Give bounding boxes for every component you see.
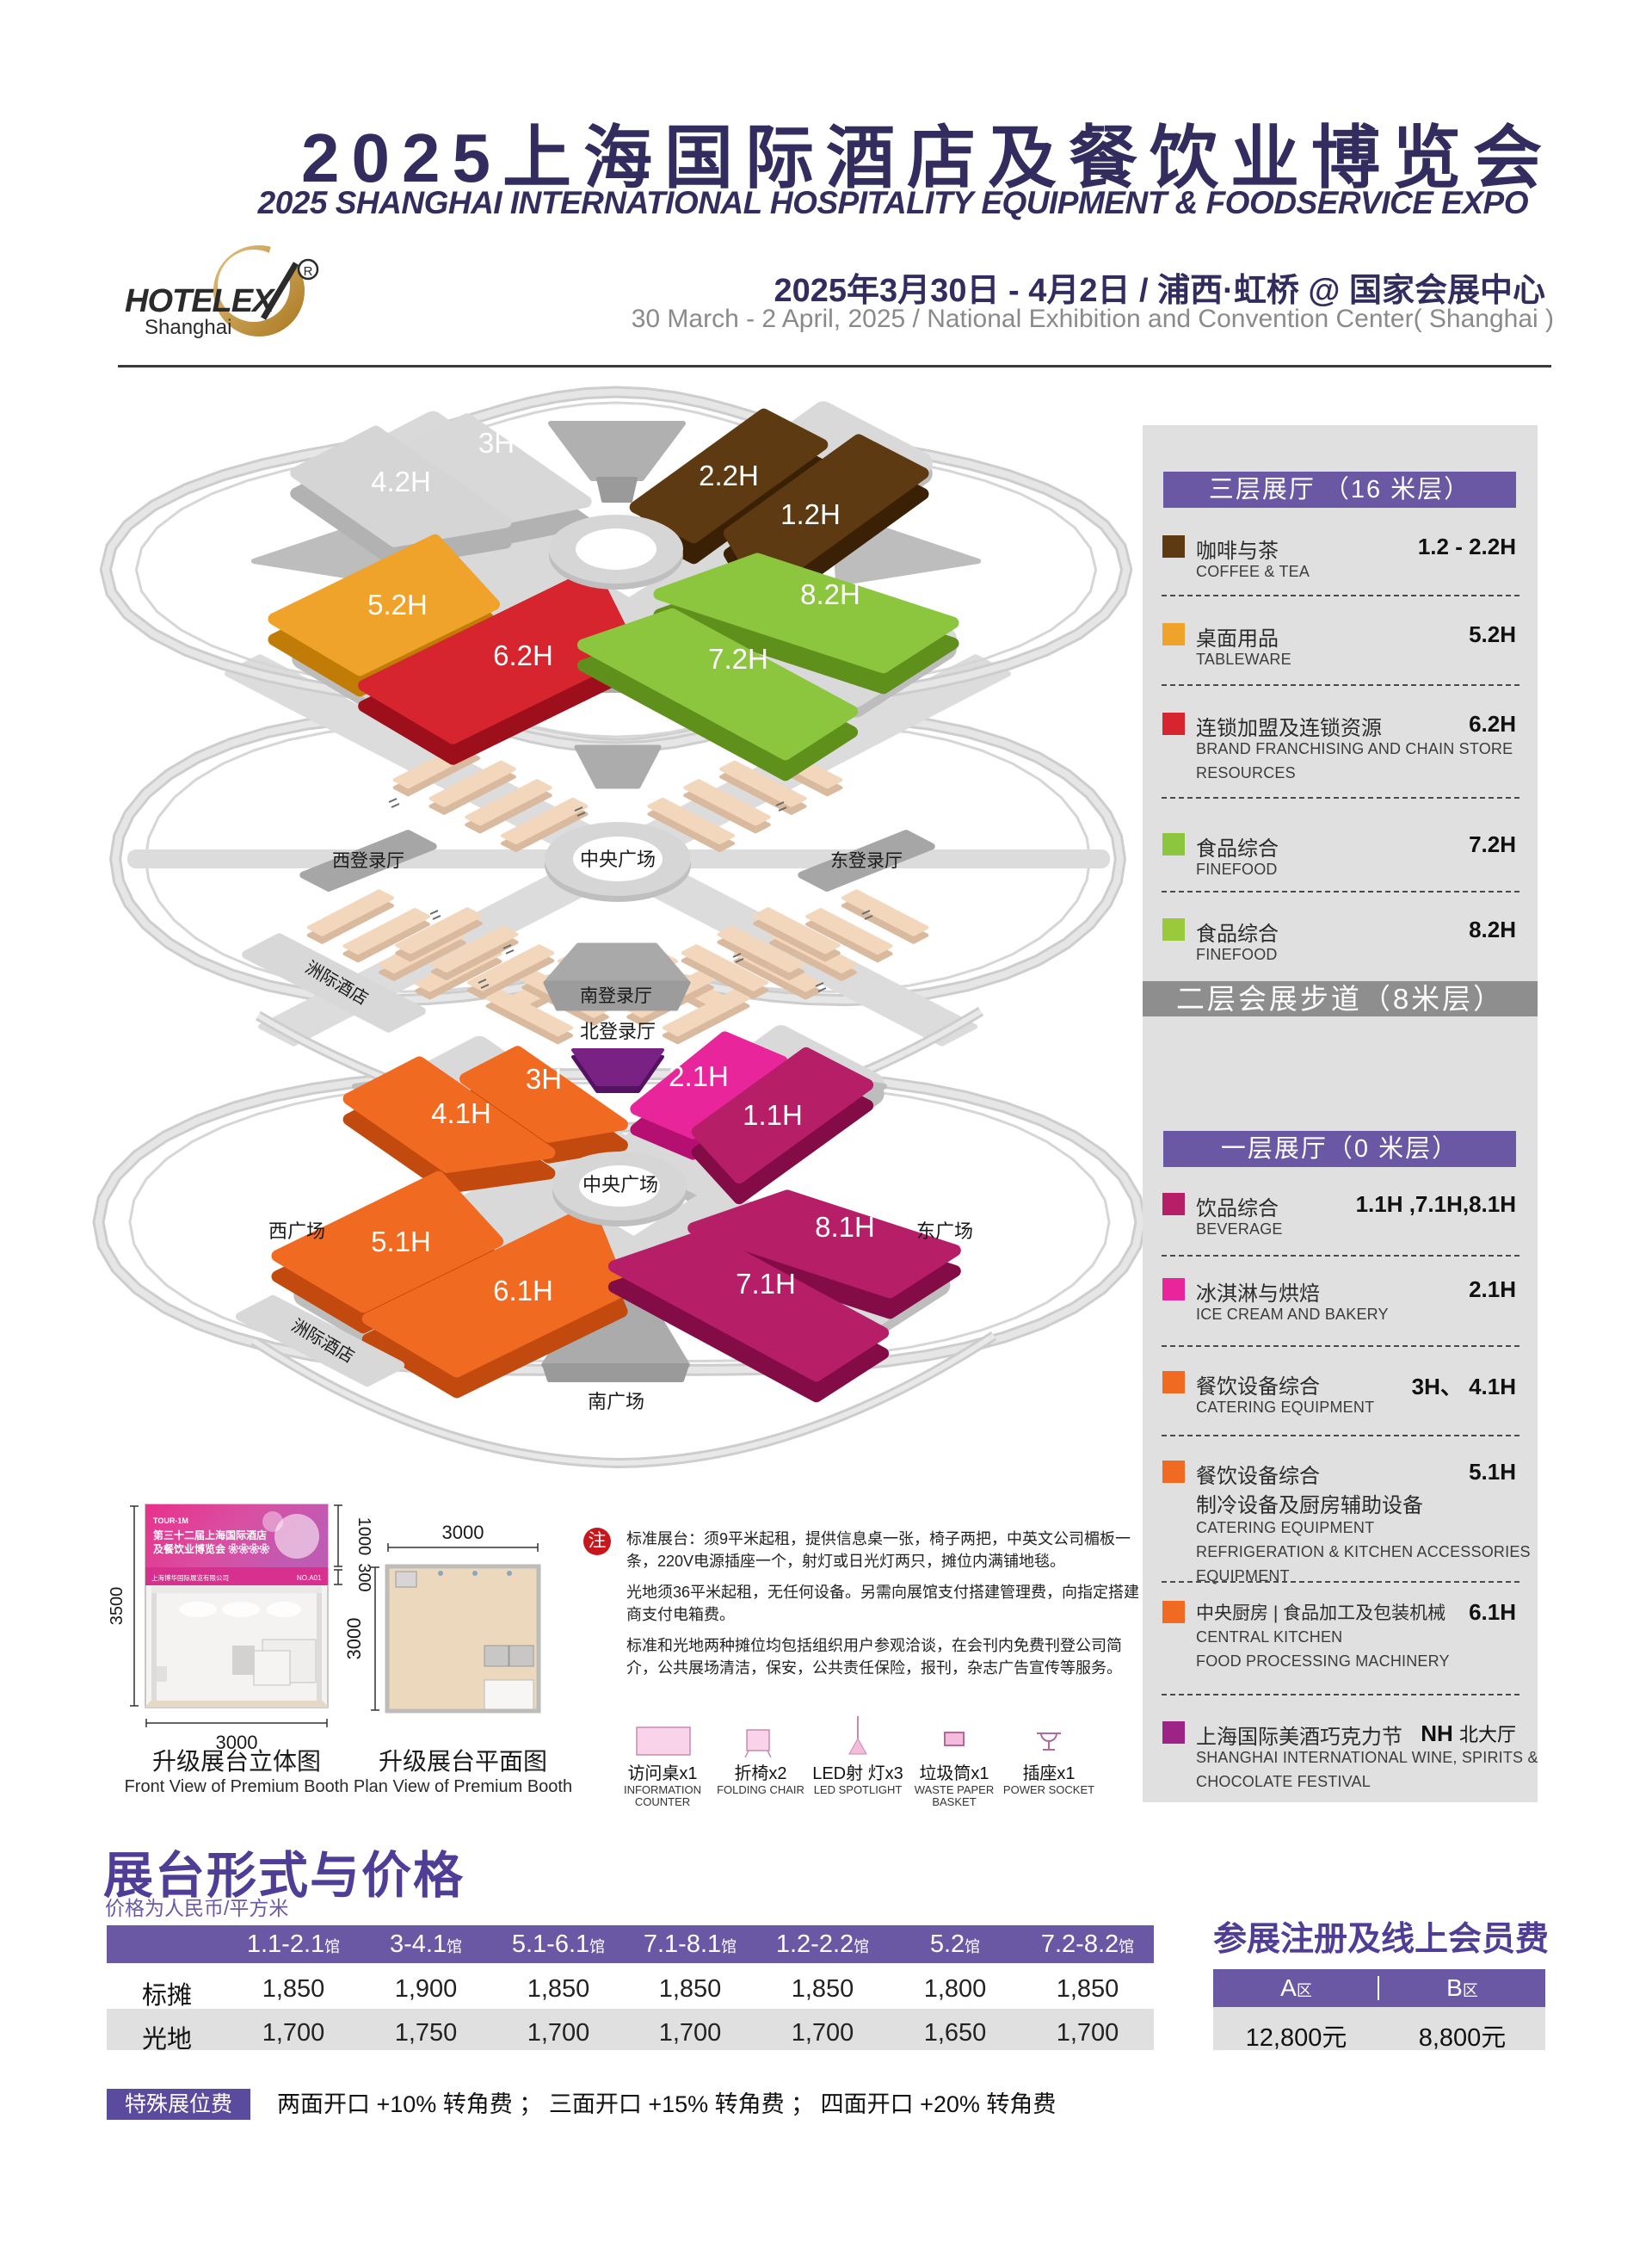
svg-text:中央广场: 中央广场 <box>583 1174 658 1195</box>
svg-text:垃圾筒x1: 垃圾筒x1 <box>919 1763 989 1783</box>
svg-text:4.1H: 4.1H <box>431 1097 491 1129</box>
svg-text:第三十二届上海国际酒店: 第三十二届上海国际酒店 <box>153 1529 267 1541</box>
svg-text:3000: 3000 <box>343 1618 365 1660</box>
svg-text:LED射 灯x3: LED射 灯x3 <box>812 1763 903 1783</box>
svg-text:6.2H: 6.2H <box>493 639 553 671</box>
svg-text:升级展台平面图: 升级展台平面图 <box>379 1748 547 1775</box>
svg-text:西广场: 西广场 <box>268 1220 325 1242</box>
svg-text:7.1H: 7.1H <box>736 1268 796 1300</box>
svg-text:5.1H: 5.1H <box>371 1226 431 1257</box>
svg-text:R: R <box>304 264 313 279</box>
svg-text:Shanghai: Shanghai <box>145 316 231 339</box>
svg-text:Plan View of Premium Booth: Plan View of Premium Booth <box>354 1777 572 1796</box>
svg-text:BASKET: BASKET <box>932 1795 976 1808</box>
svg-text:3500: 3500 <box>108 1587 126 1626</box>
svg-text:2.1H: 2.1H <box>669 1060 729 1092</box>
svg-text:北登录厅: 北登录厅 <box>580 1021 656 1042</box>
svg-text:TOUR-1M: TOUR-1M <box>153 1516 188 1525</box>
svg-text:东广场: 东广场 <box>916 1220 973 1242</box>
svg-text:7.2H: 7.2H <box>708 643 768 675</box>
svg-text:LED SPOTLIGHT: LED SPOTLIGHT <box>814 1783 903 1796</box>
svg-text:1.2H: 1.2H <box>780 498 841 530</box>
svg-text:POWER SOCKET: POWER SOCKET <box>1003 1783 1094 1796</box>
svg-text:NO.A01: NO.A01 <box>297 1574 322 1582</box>
svg-text:东登录厅: 东登录厅 <box>830 851 903 871</box>
svg-text:WASTE PAPER: WASTE PAPER <box>915 1783 994 1796</box>
svg-text:折椅x2: 折椅x2 <box>734 1763 786 1783</box>
svg-text:8.1H: 8.1H <box>815 1211 875 1243</box>
svg-text:3H: 3H <box>478 427 515 459</box>
svg-text:1000: 1000 <box>354 1517 373 1556</box>
svg-text:300: 300 <box>354 1563 373 1591</box>
svg-text:升级展台立体图: 升级展台立体图 <box>152 1748 321 1775</box>
svg-text:访问桌x1: 访问桌x1 <box>627 1763 697 1783</box>
svg-text:6.1H: 6.1H <box>493 1275 553 1306</box>
svg-text:上海博华国际展览有限公司: 上海博华国际展览有限公司 <box>151 1573 229 1582</box>
svg-text:1.1H: 1.1H <box>743 1099 803 1131</box>
svg-text:COUNTER: COUNTER <box>635 1795 690 1808</box>
svg-text:南登录厅: 南登录厅 <box>580 986 652 1006</box>
svg-text:HOTELEX: HOTELEX <box>125 283 276 319</box>
svg-text:3000: 3000 <box>442 1522 484 1543</box>
svg-text:FOLDING CHAIR: FOLDING CHAIR <box>717 1783 804 1796</box>
svg-text:中央广场: 中央广场 <box>580 849 656 870</box>
svg-text:2.2H: 2.2H <box>699 460 759 491</box>
svg-text:INFORMATION: INFORMATION <box>624 1783 701 1796</box>
svg-text:5.2H: 5.2H <box>367 589 428 621</box>
svg-text:Front View of Premium Booth: Front View of Premium Booth <box>125 1777 349 1796</box>
svg-text:3H: 3H <box>526 1063 562 1095</box>
svg-text:4.2H: 4.2H <box>371 466 431 497</box>
svg-text:及餐饮业博览会 ❀❀❀❀: 及餐饮业博览会 ❀❀❀❀ <box>153 1542 270 1555</box>
svg-text:西登录厅: 西登录厅 <box>332 851 404 871</box>
svg-text:南广场: 南广场 <box>588 1391 644 1412</box>
svg-text:插座x1: 插座x1 <box>1022 1763 1075 1783</box>
svg-text:8.2H: 8.2H <box>800 578 860 610</box>
